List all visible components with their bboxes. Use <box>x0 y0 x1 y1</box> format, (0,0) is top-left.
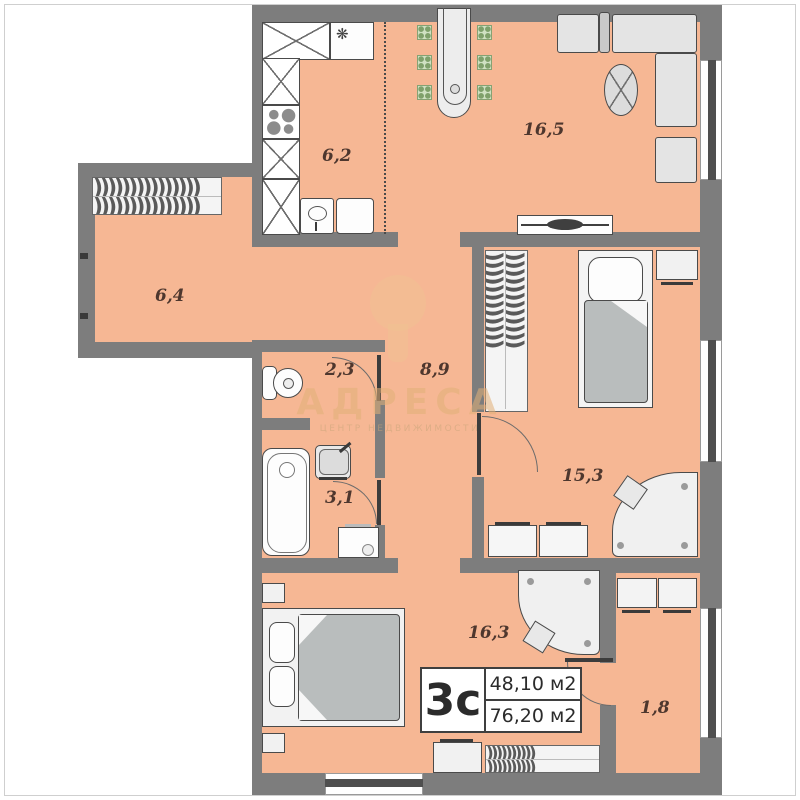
room-label-corridor: 6,4 <box>155 286 185 306</box>
nightstand-bottom <box>262 733 285 753</box>
hanger-pattern: ))))))))))))))) <box>93 178 221 197</box>
hanger-pattern: )))))))))) <box>486 746 599 760</box>
hanger-pattern: ))))))))))))))) <box>93 197 221 215</box>
sofa-armrest <box>599 12 610 53</box>
desk-dot <box>681 542 688 549</box>
armchair-right <box>655 137 697 183</box>
room-label-kitchen: 6,2 <box>322 146 352 166</box>
room-label-hall: 8,9 <box>420 360 450 380</box>
entry-hinge-mark-2 <box>80 313 88 319</box>
desk-dot <box>681 483 688 490</box>
apartment-info-box: 3с 48,10 м2 76,20 м2 <box>420 667 582 733</box>
dining-chair-5 <box>477 55 492 70</box>
room-label-balcony: 1,8 <box>640 698 670 718</box>
wall-bath-bottom <box>252 558 398 573</box>
balcony-cabinet-1 <box>617 578 657 608</box>
dining-chair-2 <box>417 55 432 70</box>
sofa-corner-seat <box>612 14 697 53</box>
floor-plan: ❋ ))))))))))))))) ))))))))))))))) <box>0 0 800 800</box>
dresser-1-handle <box>495 522 530 525</box>
balcony-cabinet-2 <box>658 578 697 608</box>
tv-screen <box>547 219 583 230</box>
dining-chair-1 <box>417 25 432 40</box>
room-label-bedroom2: 16,3 <box>468 623 509 643</box>
room-label-bedroom: 15,3 <box>562 466 603 486</box>
bed-double-pillow-2 <box>269 666 295 707</box>
desk-dot <box>617 542 624 549</box>
entry-hinge-mark-1 <box>80 253 88 259</box>
bed-double-fold-bottom <box>299 690 327 720</box>
wall-bottom <box>252 773 722 795</box>
balcony-cabinet-1-handle <box>622 610 650 613</box>
dining-chair-6 <box>477 85 492 100</box>
kitchen-cabinet-left-2 <box>262 139 300 179</box>
wall-wing-top <box>78 163 262 177</box>
wall-toilet-top <box>252 340 385 352</box>
wall-bath-right-upper <box>375 445 385 478</box>
room-label-toilet: 2,3 <box>325 360 355 380</box>
kitchen-cabinet-left-1 <box>262 58 300 105</box>
kitchen-cabinet-top <box>262 22 330 60</box>
dining-table-knob <box>450 84 460 94</box>
dresser-2 <box>539 525 588 557</box>
bath-sink-base <box>319 477 347 480</box>
wall-balcony-left-lower <box>600 705 616 773</box>
dresser-1 <box>488 525 537 557</box>
kitchen-sink-bowl <box>308 206 327 221</box>
bath-sink-basin <box>319 449 349 475</box>
washing-machine-ledge <box>345 524 371 527</box>
stove <box>262 105 300 139</box>
hanger-pattern: )))))))))) <box>486 760 599 773</box>
watermark-tagline: ЦЕНТР НЕДВИЖИМОСТИ <box>295 424 505 434</box>
room-label-living: 16,5 <box>523 120 564 140</box>
cabinet-bottom-handle <box>440 739 473 742</box>
bed-single-pillow <box>588 257 643 303</box>
wardrobe-corridor: ))))))))))))))) ))))))))))))))) <box>92 177 222 215</box>
bed-single-fold <box>611 301 647 327</box>
nightstand-handle <box>661 282 693 285</box>
dining-chair-3 <box>417 85 432 100</box>
kitchen-counter-unit <box>336 198 374 234</box>
kitchen-zone-divider <box>384 22 386 234</box>
room-label-bathroom: 3,1 <box>325 488 355 508</box>
window-bedroom-glass <box>708 340 716 462</box>
desk-dot <box>584 578 591 585</box>
bath-door-leaf <box>377 480 381 525</box>
dresser-2-handle <box>546 522 581 525</box>
wall-wing-bottom <box>78 342 262 358</box>
flat-type-label: 3с <box>422 669 486 731</box>
kitchen-sink-tap <box>315 222 317 231</box>
desk-dot <box>584 640 591 647</box>
wall-balcony-left-upper <box>600 573 616 663</box>
watermark-title: АДРЕСА <box>290 382 510 423</box>
wardrobe-bottom: )))))))))) )))))))))) <box>485 745 600 773</box>
nightstand-top <box>262 583 285 603</box>
ceiling-fan <box>604 64 638 116</box>
dining-chair-4 <box>477 25 492 40</box>
desk-dot <box>527 578 534 585</box>
bathtub-drain <box>279 462 295 478</box>
watermark-bulb-stem <box>388 324 408 362</box>
total-area-value: 76,20 м2 <box>486 701 580 731</box>
sofa-right-seat <box>655 53 697 127</box>
bed-double-pillow-1 <box>269 622 295 663</box>
bed-double-fold-top <box>299 615 327 645</box>
washing-machine-door <box>362 544 374 556</box>
balcony-cabinet-2-handle <box>663 610 691 613</box>
watermark-bulb-icon <box>370 275 426 331</box>
nightstand-bedroom <box>656 250 698 280</box>
wall-left-upper <box>252 5 262 247</box>
window-balcony-glass <box>708 608 716 738</box>
window-living-glass <box>708 60 716 180</box>
living-area-value: 48,10 м2 <box>486 669 580 701</box>
sofa-top-seat <box>557 14 599 53</box>
window-bottom-glass <box>325 779 423 787</box>
kitchen-cabinet-left-3 <box>262 179 300 235</box>
snowflake-icon: ❋ <box>336 27 349 42</box>
cabinet-bottom <box>433 742 482 773</box>
